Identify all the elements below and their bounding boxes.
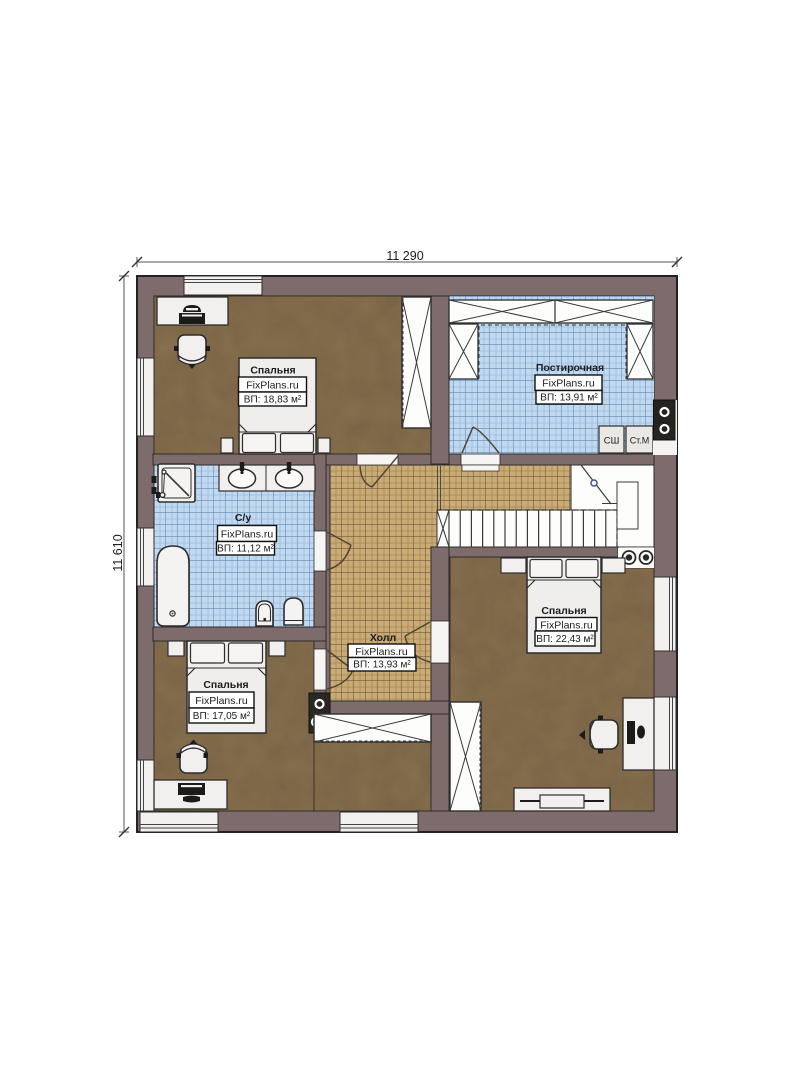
svg-text:11 290: 11 290 — [386, 249, 423, 263]
svg-text:FixPlans.ru: FixPlans.ru — [540, 620, 593, 632]
svg-text:Спальня: Спальня — [541, 605, 586, 617]
svg-text:С/у: С/у — [235, 512, 252, 524]
svg-text:11 610: 11 610 — [111, 534, 125, 571]
svg-text:ВП: 13,93 м²: ВП: 13,93 м² — [353, 660, 411, 671]
svg-text:FixPlans.ru: FixPlans.ru — [355, 646, 408, 658]
svg-text:ВП: 22,43 м²: ВП: 22,43 м² — [536, 634, 594, 645]
svg-text:FixPlans.ru: FixPlans.ru — [542, 378, 595, 390]
svg-text:Ст.М: Ст.М — [630, 436, 650, 446]
svg-text:FixPlans.ru: FixPlans.ru — [246, 380, 299, 392]
svg-text:Холл: Холл — [370, 632, 396, 644]
svg-text:Спальня: Спальня — [203, 679, 248, 691]
svg-text:Спальня: Спальня — [250, 365, 295, 377]
svg-text:ВП: 11,12 м²: ВП: 11,12 м² — [217, 544, 274, 555]
svg-text:СШ: СШ — [604, 436, 620, 447]
svg-text:ВП: 18,83 м²: ВП: 18,83 м² — [244, 395, 302, 406]
svg-text:FixPlans.ru: FixPlans.ru — [221, 529, 274, 541]
svg-text:Постирочная: Постирочная — [536, 362, 604, 374]
svg-text:ВП: 17,05 м²: ВП: 17,05 м² — [193, 711, 251, 722]
svg-text:FixPlans.ru: FixPlans.ru — [195, 695, 248, 707]
svg-text:ВП: 13,91 м²: ВП: 13,91 м² — [540, 393, 598, 404]
